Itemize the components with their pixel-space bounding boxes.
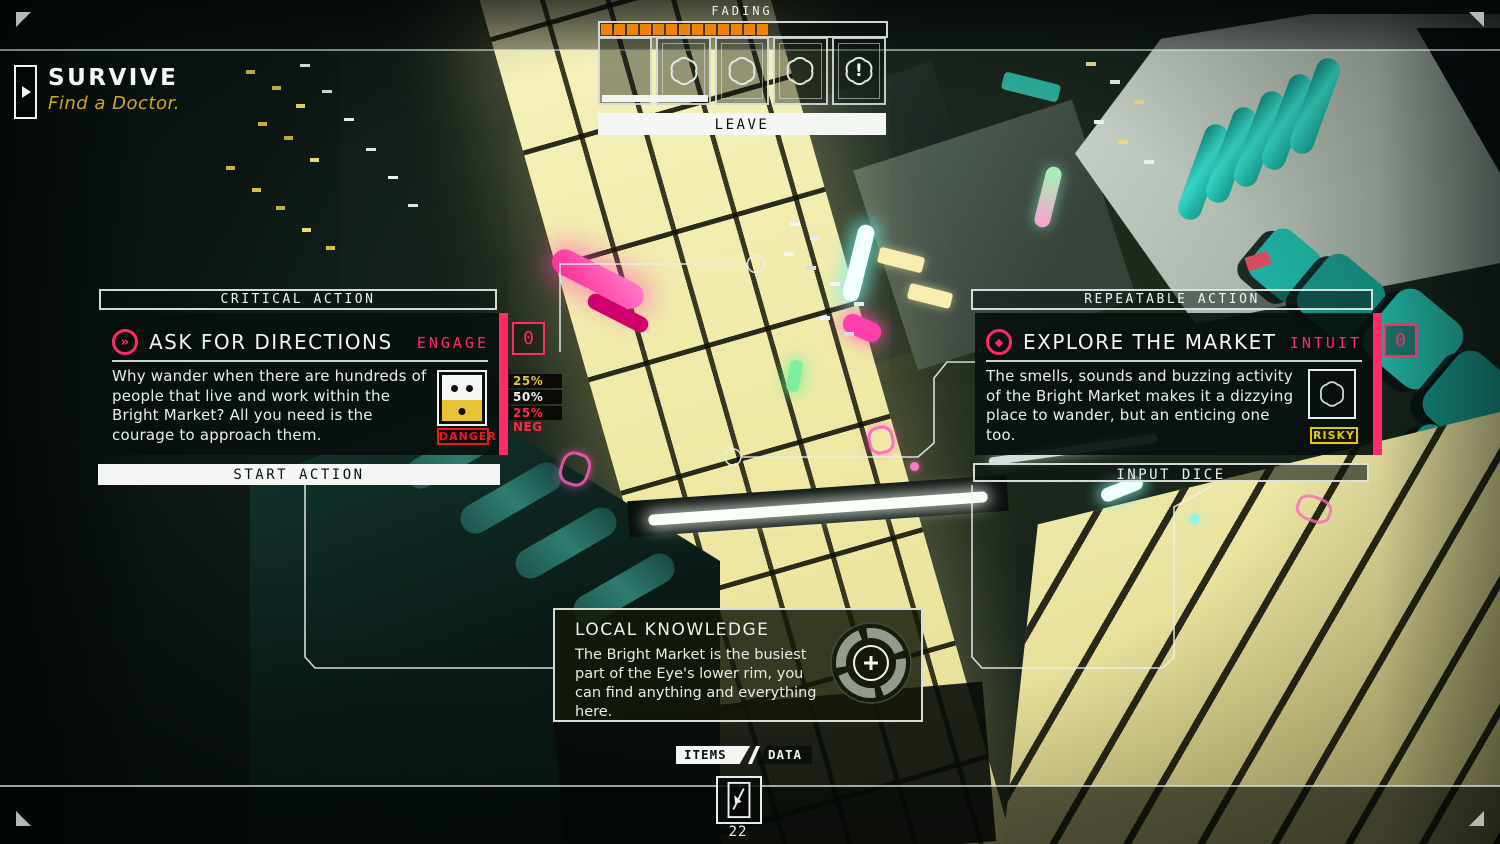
fading-meter-segment	[835, 24, 846, 35]
currency-count: 22	[702, 824, 774, 840]
fading-meter-segment	[601, 24, 612, 35]
objective-marker	[14, 65, 37, 119]
fading-meter-segment	[822, 24, 833, 35]
repeatable-action-header: REPEATABLE ACTION	[971, 289, 1373, 310]
local-knowledge-panel: LOCAL KNOWLEDGE The Bright Market is the…	[553, 608, 923, 722]
risky-tag: RISKY	[1310, 427, 1358, 444]
empty-dice-slot[interactable]	[1308, 369, 1356, 419]
action-accent-bar	[499, 313, 508, 455]
inventory-tabs: ITEMS DATA	[676, 746, 812, 764]
cycle-slot-die[interactable]	[773, 37, 827, 105]
tab-data[interactable]: DATA	[758, 746, 812, 764]
fading-meter-segment	[848, 24, 859, 35]
fading-meter-segment	[796, 24, 807, 35]
dice-count-slot[interactable]: 0	[1384, 324, 1417, 357]
fading-meter	[598, 21, 888, 38]
outcome-positive: 25% POS	[509, 374, 562, 388]
cycle-progress-bar	[602, 95, 708, 102]
die-token-outline-icon	[1314, 376, 1350, 412]
divider	[112, 360, 488, 362]
game-screen: SURVIVE Find a Doctor. FADING ! LEAVE CR…	[0, 0, 1500, 844]
fading-meter-segment	[757, 24, 768, 35]
tab-divider	[748, 746, 760, 764]
fading-meter-segment	[744, 24, 755, 35]
outcome-negative: 25% NEG	[509, 406, 562, 420]
currency-chit-slot[interactable]	[716, 776, 762, 824]
intuit-action-icon: ◆	[986, 329, 1012, 355]
slotted-die[interactable]	[437, 370, 487, 426]
tab-items[interactable]: ITEMS	[676, 746, 750, 764]
fading-meter-segment	[627, 24, 638, 35]
divider	[986, 360, 1362, 362]
fading-meter-segment	[705, 24, 716, 35]
action-description: Why wander when there are hundreds of pe…	[112, 367, 427, 445]
fading-meter-segment	[653, 24, 664, 35]
action-title: ASK FOR DIRECTIONS	[149, 330, 393, 354]
fading-label: FADING	[598, 4, 886, 18]
die-token-icon	[722, 51, 762, 91]
critical-action-header: CRITICAL ACTION	[99, 289, 497, 310]
fading-meter-segment	[770, 24, 781, 35]
fading-meter-segment	[861, 24, 872, 35]
fading-meter-segment	[614, 24, 625, 35]
location-gauge[interactable]	[829, 621, 913, 705]
alert-exclamation: !	[855, 63, 863, 80]
fading-meter-segment	[874, 24, 885, 35]
play-icon	[22, 86, 31, 98]
cycle-slot-die[interactable]	[715, 37, 769, 105]
action-title: EXPLORE THE MARKET	[1023, 330, 1277, 354]
fading-meter-segment	[666, 24, 677, 35]
fading-meter-segment	[679, 24, 690, 35]
fading-meter-segment	[640, 24, 651, 35]
connector-node	[725, 449, 741, 465]
start-action-button[interactable]: START ACTION	[98, 464, 500, 485]
outcome-neutral: 50% NEU	[509, 390, 562, 404]
action-description: The smells, sounds and buzzing activity …	[986, 367, 1296, 445]
fading-meter-segment	[692, 24, 703, 35]
die-token-icon	[664, 51, 704, 91]
input-dice-button[interactable]: INPUT DICE	[973, 463, 1369, 482]
danger-tag: DANGER	[437, 428, 489, 445]
fading-meter-segment	[809, 24, 820, 35]
local-knowledge-description: The Bright Market is the busiest part of…	[575, 646, 823, 722]
dice-count-slot[interactable]: 0	[512, 322, 545, 355]
leave-button[interactable]: LEAVE	[598, 113, 886, 135]
engage-action-icon: »	[112, 329, 138, 355]
action-accent-bar	[1373, 313, 1382, 455]
action-skill-label: ENGAGE	[404, 334, 489, 352]
plus-icon	[870, 656, 873, 670]
fading-meter-segment	[718, 24, 729, 35]
local-knowledge-title: LOCAL KNOWLEDGE	[575, 620, 769, 640]
connector-node	[748, 256, 765, 273]
fading-meter-segment	[783, 24, 794, 35]
die-token-icon	[780, 51, 820, 91]
die-face	[442, 375, 482, 421]
cycle-slot-alert[interactable]: !	[832, 37, 886, 105]
fading-meter-segment	[731, 24, 742, 35]
action-skill-label: INTUIT	[1280, 334, 1362, 352]
objective-tracker: SURVIVE Find a Doctor.	[14, 65, 180, 119]
objective-subtitle: Find a Doctor.	[48, 93, 180, 114]
objective-title: SURVIVE	[48, 65, 180, 91]
chit-icon	[726, 781, 752, 819]
